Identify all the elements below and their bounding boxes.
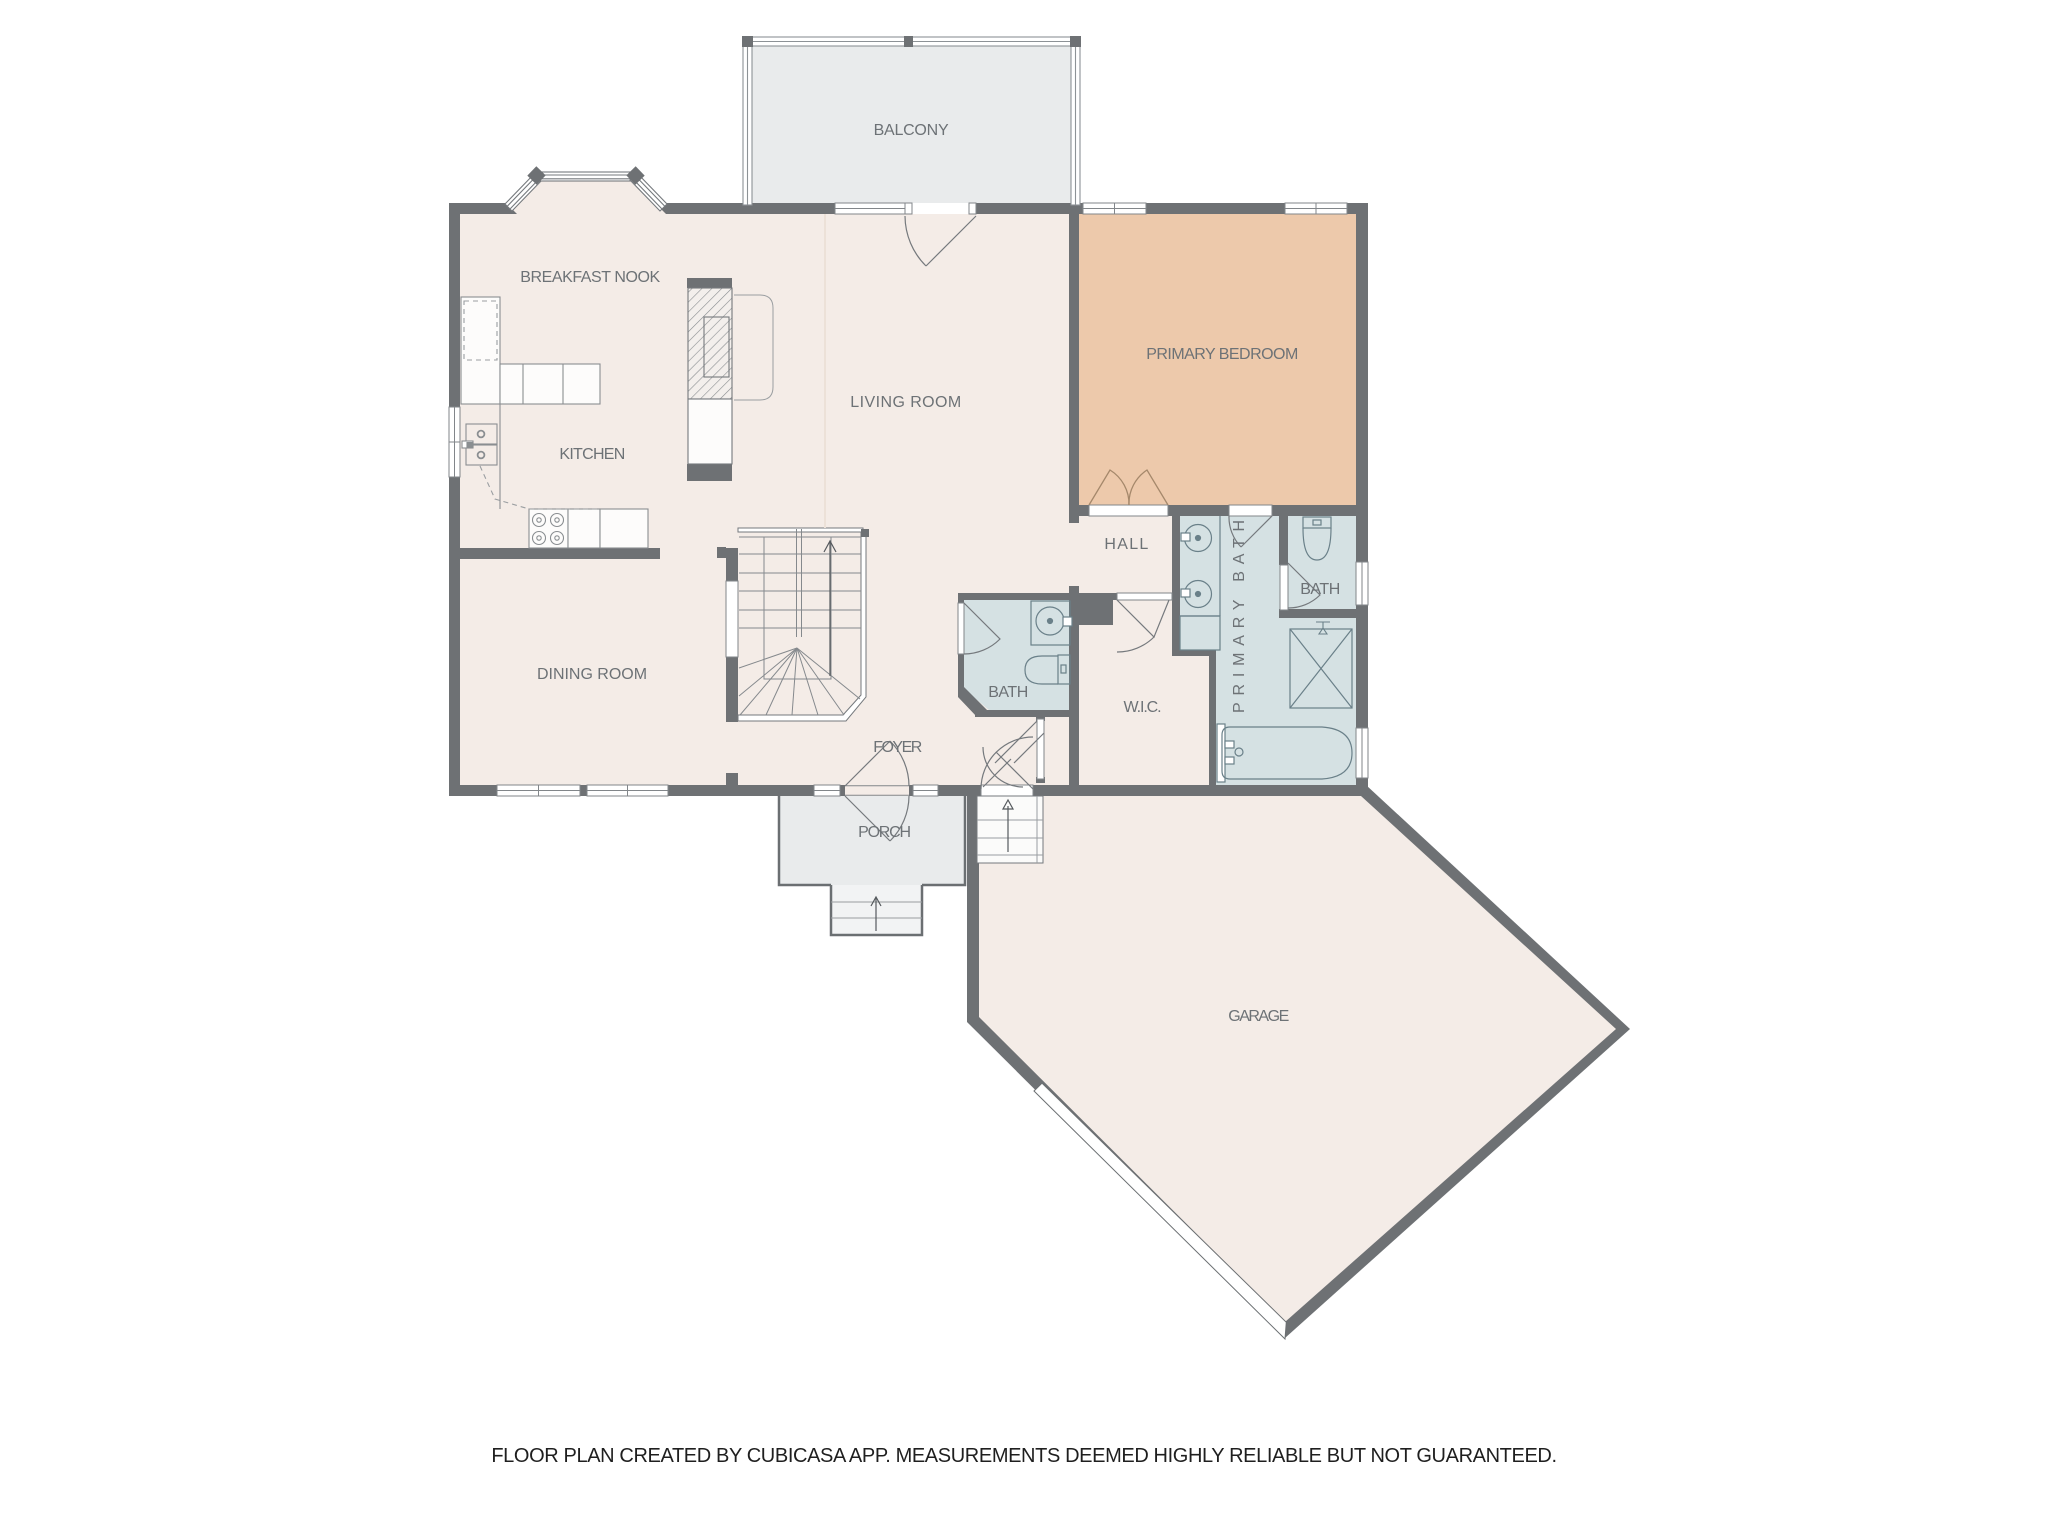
svg-text:GARAGE: GARAGE <box>1228 1008 1288 1025</box>
svg-text:DINING ROOM: DINING ROOM <box>537 666 647 683</box>
svg-text:BATH: BATH <box>1300 581 1340 598</box>
svg-text:BREAKFAST NOOK: BREAKFAST NOOK <box>520 269 660 286</box>
svg-text:PRIMARY BEDROOM: PRIMARY BEDROOM <box>1146 346 1298 363</box>
svg-text:LIVING ROOM: LIVING ROOM <box>850 394 961 411</box>
svg-text:W.I.C.: W.I.C. <box>1124 699 1161 716</box>
svg-text:BALCONY: BALCONY <box>874 122 949 139</box>
svg-text:FLOOR PLAN CREATED BY CUBICASA: FLOOR PLAN CREATED BY CUBICASA APP. MEAS… <box>491 1445 1556 1467</box>
svg-text:FOYER: FOYER <box>873 739 921 756</box>
svg-text:BATH: BATH <box>988 684 1028 701</box>
svg-text:HALL: HALL <box>1104 536 1149 553</box>
svg-text:PRIMARY BATH: PRIMARY BATH <box>1231 513 1248 713</box>
svg-text:PORCH: PORCH <box>858 824 910 841</box>
svg-text:KITCHEN: KITCHEN <box>559 446 624 463</box>
